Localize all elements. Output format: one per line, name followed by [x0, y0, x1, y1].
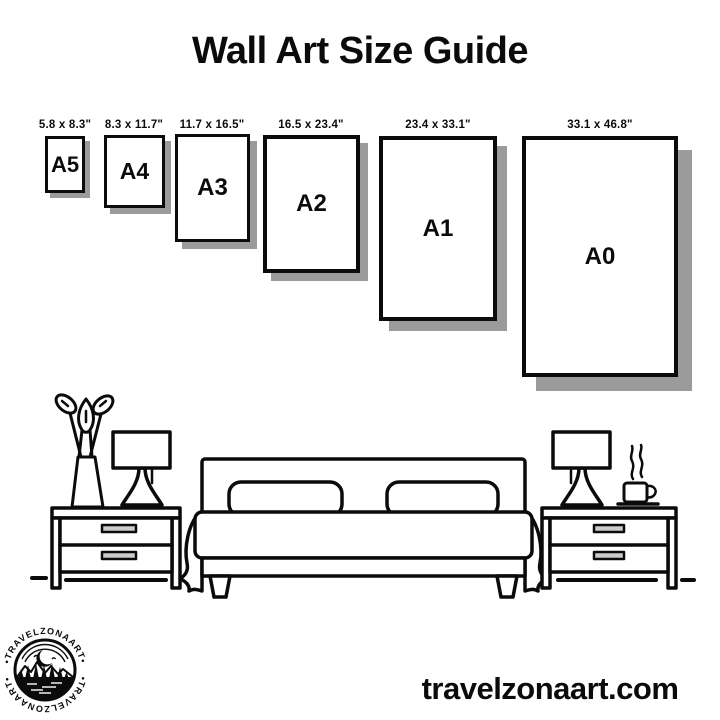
paper-letter-a3: A3 [197, 174, 228, 202]
size-label-a2: 16.5 x 23.4" [278, 119, 343, 131]
paper-frame-a1: A1 [379, 136, 497, 321]
coffee-cup-icon [618, 445, 658, 504]
size-guide-poster: Wall Art Size Guide 5.8 x 8.3" 8.3 x 11.… [0, 0, 720, 720]
drawer-handle [594, 552, 624, 559]
drawer-handle [102, 525, 136, 532]
paper-letter-a5: A5 [51, 152, 79, 178]
lamp-shade [553, 432, 610, 468]
drawer-handle [102, 552, 136, 559]
table-lamp-left-icon [113, 432, 170, 505]
paper-frame-a2: A2 [263, 135, 360, 273]
lamp-shade [113, 432, 170, 468]
steam [631, 446, 633, 479]
steam [640, 445, 642, 477]
size-label-a1: 23.4 x 33.1" [405, 119, 470, 131]
travelzonaart-logo: •TRAVELZONAART• •TRAVELZONAART• [1, 626, 90, 715]
plant-stem [90, 430, 92, 457]
paper-frame-a3: A3 [175, 134, 250, 242]
ground-band [16, 677, 74, 699]
paper-letter-a2: A2 [296, 190, 327, 218]
plant-stem [79, 430, 82, 457]
paper-letter-a4: A4 [120, 158, 149, 185]
vase [72, 457, 103, 507]
website-url: travelzonaart.com [400, 671, 700, 707]
table-lamp-right-icon [553, 432, 610, 505]
cup-body [624, 483, 647, 502]
lamp-base [562, 468, 602, 505]
plant-icon [53, 391, 117, 507]
bed-foot-left [210, 576, 230, 597]
size-label-a3: 11.7 x 16.5" [180, 119, 245, 131]
drawer-handle [594, 525, 624, 532]
bed-base [202, 558, 525, 576]
size-label-a0: 33.1 x 46.8" [567, 119, 632, 131]
size-label-a5: 5.8 x 8.3" [39, 119, 91, 131]
lamp-base [122, 468, 162, 505]
mattress [195, 512, 532, 558]
paper-frame-a0: A0 [522, 136, 678, 377]
paper-frame-a4: A4 [104, 135, 165, 208]
page-title: Wall Art Size Guide [0, 30, 720, 73]
bed-foot-right [497, 576, 517, 597]
paper-letter-a0: A0 [585, 243, 616, 271]
nightstand-right [542, 508, 676, 588]
paper-frame-a5: A5 [45, 136, 85, 193]
size-label-a4: 8.3 x 11.7" [105, 119, 163, 131]
bed [180, 459, 547, 597]
nightstand-left [52, 508, 180, 588]
paper-letter-a1: A1 [423, 215, 454, 243]
bedroom-illustration [0, 378, 720, 603]
